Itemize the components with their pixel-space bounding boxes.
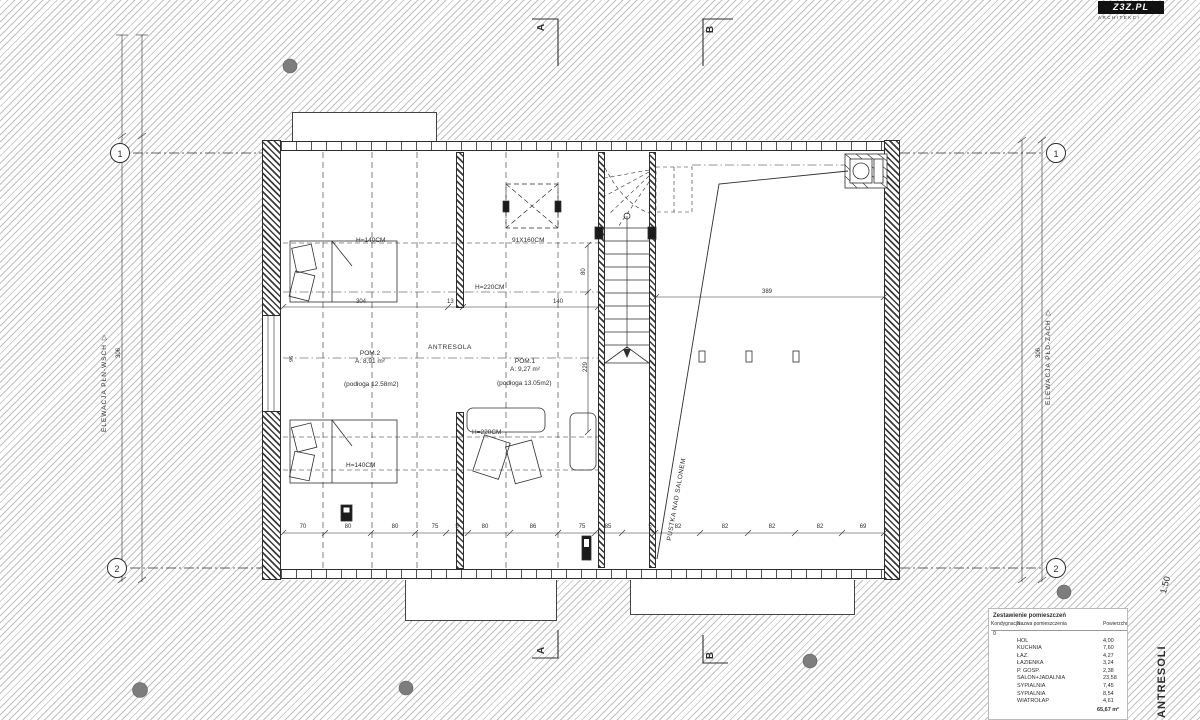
col-area: Powierzchnia <box>1103 622 1128 628</box>
row-name: ŁAZ. <box>1017 653 1101 661</box>
dimension-229: 229 <box>583 362 590 372</box>
dim-b6: 86 <box>523 524 543 531</box>
table-row: ŁAZ.4,27 <box>991 653 1127 661</box>
dim-b13: 82 <box>810 524 830 531</box>
elevation-label-right: ELEWACJA PŁD-ZACH▷ <box>1044 309 1052 405</box>
height-label-h140-bottom: H=140CM <box>346 462 375 470</box>
row-name: KUCHNIA <box>1017 645 1101 653</box>
pom2-floor: (podłoga 12.58m2) <box>344 381 399 389</box>
pom2-area: A: 8,91 m² <box>340 358 400 366</box>
table-row: KUCHNIA7,60 <box>991 645 1127 653</box>
bed-1 <box>289 241 397 302</box>
row-area: 2,38 <box>1103 668 1128 676</box>
columns <box>341 505 591 560</box>
dimension-140: 140 <box>553 299 563 306</box>
dimension-80: 80 <box>581 268 588 275</box>
storey-value: 0 <box>993 631 1127 638</box>
dim-b12: 82 <box>762 524 782 531</box>
elevation-left-text: ELEWACJA PŁN-WSCH <box>101 344 108 432</box>
grid-bubble-1-right: 1 <box>1046 143 1066 163</box>
pom2-name: POM.2 <box>340 350 400 358</box>
row-name: HOL <box>1017 638 1101 646</box>
dimension-306-right: 306 <box>1036 348 1043 358</box>
col-name: Nazwa pomieszczenia <box>1017 622 1101 628</box>
height-dashed-horizontals <box>283 165 845 470</box>
grid-bubble-1-left: 1 <box>110 143 130 163</box>
skylight-size-label: 91X160CM <box>512 237 545 245</box>
section-marker-a-top: A <box>536 24 547 31</box>
stair <box>595 167 692 363</box>
table-title: Zestawienie pomieszczeń <box>993 613 1127 619</box>
height-label-h220-mid: H=220CM <box>472 429 501 437</box>
table-row: SYPIALNIA8,54 <box>991 691 1127 699</box>
void-boundary <box>657 171 848 559</box>
section-marker-a-bottom: A <box>536 647 547 654</box>
north-triangle-icon: ▷ <box>100 334 108 340</box>
pom1-name: POM.1 <box>495 358 555 366</box>
elevation-label-left: ELEWACJA PŁN-WSCH▷ <box>100 334 108 432</box>
dimension-lines <box>280 242 887 536</box>
section-marker-b-top: B <box>705 26 716 33</box>
table-row: HOL4,00 <box>991 638 1127 646</box>
dim-b5: 80 <box>475 524 495 531</box>
survey-dots <box>133 59 1072 698</box>
row-name: SALON+JADALNIA <box>1017 675 1101 683</box>
pom1-area: A: 9,27 m² <box>495 366 555 374</box>
pom1-floor: (podłoga 13.05m2) <box>497 380 552 388</box>
dim-b1: 80 <box>338 524 358 531</box>
row-name: P. GOSP. <box>1017 668 1101 676</box>
grid-bubble-2-left: 2 <box>107 558 127 578</box>
row-name: SYPIALNIA <box>1017 691 1101 699</box>
row-area: 7,60 <box>1103 645 1128 653</box>
room-label-pom2: POM.2 A: 8,91 m² <box>340 350 400 365</box>
row-area: 23,58 <box>1103 675 1128 683</box>
row-area: 4,27 <box>1103 653 1128 661</box>
dim-b9: 5 <box>640 524 660 531</box>
dim-b11: 82 <box>715 524 735 531</box>
table-row: P. GOSP.2,38 <box>991 668 1127 676</box>
row-area: 3,24 <box>1103 660 1128 668</box>
dimension-kneewall-96: 96 <box>289 356 296 362</box>
dimension-306-left: 306 <box>116 348 123 358</box>
dim-b7: 75 <box>572 524 592 531</box>
dim-b3: 75 <box>425 524 445 531</box>
height-label-h140-top: H=140CM <box>356 237 385 245</box>
room-schedule-table: Zestawienie pomieszczeń Kondygnacja Nazw… <box>988 608 1128 720</box>
table-row: ŁAZIENKA3,24 <box>991 660 1127 668</box>
dimension-389: 389 <box>762 289 772 296</box>
window-glazing <box>268 315 274 412</box>
elevation-right-text: ELEWACJA PŁD-ZACH <box>1045 319 1052 405</box>
row-name: WIATROŁAP <box>1017 698 1101 706</box>
grid-bubble-2-right: 2 <box>1046 558 1066 578</box>
height-label-h220-top: H=220CM <box>475 284 504 292</box>
grid-axis-lines <box>130 153 1044 568</box>
row-area: 4,61 <box>1103 698 1128 706</box>
room-label-pom1: POM.1 A: 9,27 m² <box>495 358 555 373</box>
skylight <box>503 184 561 228</box>
dim-b14: 69 <box>853 524 873 531</box>
sofa <box>467 408 596 484</box>
section-marker-b-bottom: B <box>705 652 716 659</box>
drawing-title: ANTRESOLI <box>1156 645 1168 718</box>
dim-b2: 80 <box>385 524 405 531</box>
row-area: 4,00 <box>1103 638 1128 646</box>
table-total: 65,67 m² <box>989 707 1119 713</box>
company-logo-tagline: ARCHITEKCI <box>1098 15 1164 20</box>
company-logo: Z3Z.PL <box>1098 1 1164 14</box>
row-area: 8,54 <box>1103 691 1128 699</box>
table-header: Kondygnacja Nazwa pomieszczenia Powierzc… <box>991 622 1127 631</box>
outer-dimension-lines <box>116 35 1046 583</box>
col-storey: Kondygnacja <box>991 622 1015 628</box>
room-label-antresola: ANTRESOLA <box>428 344 472 352</box>
row-area: 7,45 <box>1103 683 1128 691</box>
chimney <box>845 154 887 188</box>
drawing-sheet: 1 1 2 2 A B A B ELEWACJA PŁN-WSCH▷ ELEWA… <box>0 0 1200 720</box>
row-name: ŁAZIENKA <box>1017 660 1101 668</box>
table-row: SALON+JADALNIA23,58 <box>991 675 1127 683</box>
row-name: SYPIALNIA <box>1017 683 1101 691</box>
dim-b8: 85 <box>598 524 618 531</box>
dim-b10: 82 <box>668 524 688 531</box>
dim-b0: 70 <box>293 524 313 531</box>
north-triangle-icon: ▷ <box>1044 309 1052 315</box>
dimension-304: 304 <box>356 299 366 306</box>
table-row: SYPIALNIA7,45 <box>991 683 1127 691</box>
dim-b4: 5 <box>447 524 467 531</box>
table-row: WIATROŁAP4,61 <box>991 698 1127 706</box>
dimension-13: 13 <box>447 299 454 306</box>
section-brackets <box>532 19 733 663</box>
bed-2 <box>290 420 397 483</box>
